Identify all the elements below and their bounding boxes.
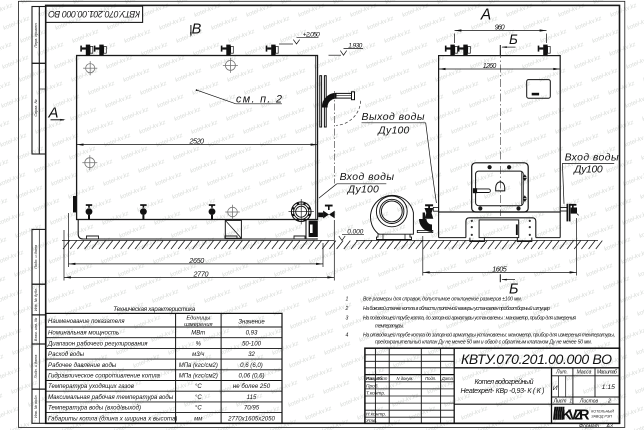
svg-text:kotel-kv.kz: kotel-kv.kz [0, 393, 4, 409]
svg-text:kotel-kv.kz: kotel-kv.kz [636, 341, 644, 357]
svg-text:kotel-kv.kz: kotel-kv.kz [288, 393, 316, 409]
svg-text:Лист: Лист [376, 376, 388, 381]
svg-text:kotel-kv.kz: kotel-kv.kz [624, 133, 644, 149]
svg-text:kotel-kv.kz: kotel-kv.kz [600, 393, 628, 409]
svg-text:kotel-kv.kz: kotel-kv.kz [0, 250, 25, 266]
svg-text:kotel-kv.kz: kotel-kv.kz [151, 328, 179, 344]
svg-text:Диапазон рабочего регулировани: Диапазон рабочего регулирования [47, 340, 148, 347]
svg-text:Рабочее давление воды: Рабочее давление воды [48, 362, 117, 369]
svg-text:kotel-kv.kz: kotel-kv.kz [87, 120, 115, 136]
svg-text:2: 2 [345, 306, 349, 312]
svg-text:Наименование показателя: Наименование показателя [48, 319, 125, 325]
svg-text:kotel-kv.kz: kotel-kv.kz [365, 94, 393, 110]
svg-text:На отводящей трубе котла до за: На отводящей трубе котла до запорной арм… [363, 332, 615, 339]
svg-text:kotel-kv.kz: kotel-kv.kz [534, 263, 562, 279]
svg-text:м3/ч: м3/ч [192, 352, 204, 358]
svg-text:kotel-kv.kz: kotel-kv.kz [381, 146, 409, 162]
svg-text:kotel-kv.kz: kotel-kv.kz [242, 159, 270, 175]
svg-text:kotel-kv.kz: kotel-kv.kz [383, 68, 411, 84]
svg-text:kotel-kv.kz: kotel-kv.kz [16, 185, 44, 201]
svg-text:Подп. и дата: Подп. и дата [34, 355, 38, 379]
svg-text:kotel-kv.kz: kotel-kv.kz [66, 263, 94, 279]
svg-text:Лит.: Лит. [555, 370, 568, 376]
svg-text:kotel-kv.kz: kotel-kv.kz [591, 68, 619, 84]
svg-text:kotel-kv.kz: kotel-kv.kz [0, 42, 13, 58]
svg-text:kotel-kv.kz: kotel-kv.kz [538, 107, 566, 123]
svg-text:kotel-kv.kz: kotel-kv.kz [21, 0, 49, 6]
svg-text:kotel-kv.kz: kotel-kv.kz [638, 263, 644, 279]
svg-text:KVZR: KVZR [562, 408, 591, 424]
svg-text:kotel-kv.kz: kotel-kv.kz [122, 107, 150, 123]
svg-text:МПа (кгс/см2): МПа (кгс/см2) [179, 374, 218, 380]
svg-text:kotel-kv.kz: kotel-kv.kz [430, 263, 458, 279]
svg-text:Максимальная рабочая температу: Максимальная рабочая температура воды [48, 394, 174, 401]
svg-text:kotel-kv.kz: kotel-kv.kz [138, 159, 166, 175]
svg-text:Н.контр.: Н.контр. [366, 412, 386, 418]
svg-text:kotel-kv.kz: kotel-kv.kz [34, 159, 62, 175]
svg-text:kotel-kv.kz: kotel-kv.kz [609, 42, 637, 58]
svg-text:kotel-kv.kz: kotel-kv.kz [124, 29, 152, 45]
svg-text:kotel-kv.kz: kotel-kv.kz [159, 16, 187, 32]
svg-text:kotel-kv.kz: kotel-kv.kz [467, 172, 495, 188]
svg-text:kotel-kv.kz: kotel-kv.kz [0, 198, 9, 214]
svg-text:kotel-kv.kz: kotel-kv.kz [513, 406, 541, 422]
svg-text:мм: мм [194, 416, 202, 422]
svg-text:kotel-kv.kz: kotel-kv.kz [3, 16, 31, 32]
svg-text:kotel-kv.kz: kotel-kv.kz [263, 16, 291, 32]
svg-text:Номинальная мощность: Номинальная мощность [48, 330, 119, 337]
svg-text:kotel-kv.kz: kotel-kv.kz [0, 276, 7, 292]
svg-text:kotel-kv.kz: kotel-kv.kz [12, 341, 40, 357]
svg-text:kotel-kv.kz: kotel-kv.kz [274, 263, 302, 279]
svg-text:Техническая характеристика: Техническая характеристика [113, 306, 195, 313]
svg-text:МПа (кгс/см2): МПа (кгс/см2) [179, 363, 218, 369]
svg-text:kotel-kv.kz: kotel-kv.kz [588, 185, 616, 201]
svg-text:1260: 1260 [483, 63, 497, 70]
svg-text:kotel-kv.kz: kotel-kv.kz [536, 185, 564, 201]
svg-text:kotel-kv.kz: kotel-kv.kz [450, 159, 478, 175]
svg-text:температуры.: температуры. [375, 324, 404, 330]
svg-text:kotel-kv.kz: kotel-kv.kz [417, 94, 445, 110]
svg-text:2770х1605х2050: 2770х1605х2050 [227, 415, 275, 422]
svg-text:kotel-kv.kz: kotel-kv.kz [452, 81, 480, 97]
svg-text:Масштаб: Масштаб [597, 370, 617, 376]
svg-text:kotel-kv.kz: kotel-kv.kz [0, 120, 11, 136]
svg-text:Формат: Формат [579, 423, 599, 429]
svg-text:kotel-kv.kz: kotel-kv.kz [275, 224, 303, 240]
svg-text:kotel-kv.kz: kotel-kv.kz [208, 133, 236, 149]
svg-text:kotel-kv.kz: kotel-kv.kz [309, 250, 337, 266]
svg-text:Значение: Значение [238, 319, 265, 325]
svg-text:kotel-kv.kz: kotel-kv.kz [2, 55, 30, 71]
svg-text:kotel-kv.kz: kotel-kv.kz [295, 120, 323, 136]
svg-text:Подп.: Подп. [425, 376, 436, 381]
svg-text:kotel-kv.kz: kotel-kv.kz [0, 406, 21, 422]
svg-text:kotel-kv.kz: kotel-kv.kz [121, 146, 149, 162]
svg-text:kotel-kv.kz: kotel-kv.kz [289, 354, 317, 370]
svg-text:1:15: 1:15 [602, 384, 615, 391]
svg-text:предохранительный клапан Ду н: предохранительный клапан Ду не менее 50 … [375, 339, 592, 346]
svg-text:kotel-kv.kz: kotel-kv.kz [444, 393, 472, 409]
svg-text:kotel-kv.kz: kotel-kv.kz [155, 172, 183, 188]
svg-text:kotel-kv.kz: kotel-kv.kz [634, 419, 644, 430]
svg-text:kotel-kv.kz: kotel-kv.kz [257, 250, 285, 266]
svg-text:МВт: МВт [191, 331, 205, 337]
svg-text:kotel-kv.kz: kotel-kv.kz [156, 133, 184, 149]
svg-text:kotel-kv.kz: kotel-kv.kz [618, 367, 644, 383]
svg-text:kotel-kv.kz: kotel-kv.kz [123, 68, 151, 84]
svg-text:kotel-kv.kz: kotel-kv.kz [72, 29, 100, 45]
svg-text:kotel-kv.kz: kotel-kv.kz [222, 263, 250, 279]
svg-text:Лист: Лист [553, 399, 567, 405]
svg-text:Справ. №: Справ. № [34, 99, 38, 116]
svg-text:kotel-kv.kz: kotel-kv.kz [241, 198, 269, 214]
svg-text:kotel-kv.kz: kotel-kv.kz [0, 328, 23, 344]
svg-text:Дата: Дата [441, 376, 454, 381]
svg-text:kotel-kv.kz: kotel-kv.kz [409, 406, 437, 422]
svg-text:960: 960 [495, 24, 505, 31]
svg-text:kotel-kv.kz: kotel-kv.kz [608, 81, 636, 97]
svg-text:kotel-kv.kz: kotel-kv.kz [305, 406, 333, 422]
svg-text:Ду100: Ду100 [377, 125, 409, 136]
svg-text:Выход воды: Выход воды [362, 112, 425, 123]
svg-text:kotel-kv.kz: kotel-kv.kz [191, 120, 219, 136]
svg-text:kotel-kv.kz: kotel-kv.kz [384, 29, 412, 45]
svg-text:0,06 (0,6): 0,06 (0,6) [238, 373, 264, 380]
svg-text:измерения: измерения [184, 322, 212, 328]
svg-text:kotel-kv.kz: kotel-kv.kz [517, 250, 545, 266]
svg-text:kotel-kv.kz: kotel-kv.kz [205, 250, 233, 266]
svg-text:kotel-kv.kz: kotel-kv.kz [590, 107, 618, 123]
svg-text:1: 1 [569, 399, 572, 405]
svg-text:kotel-kv.kz: kotel-kv.kz [496, 393, 524, 409]
svg-text:kotel-kv.kz: kotel-kv.kz [324, 341, 352, 357]
svg-text:На боковой стенке котла в обла: На боковой стенке котла в области топочн… [363, 305, 550, 312]
svg-text:kotel-kv.kz: kotel-kv.kz [641, 146, 644, 162]
svg-text:kotel-kv.kz: kotel-kv.kz [626, 55, 644, 71]
svg-text:2520: 2520 [189, 137, 205, 146]
svg-text:0.000: 0.000 [347, 228, 363, 235]
svg-text:kotel-kv.kz: kotel-kv.kz [210, 55, 238, 71]
svg-text:Подп. и дата: Подп. и дата [34, 245, 38, 269]
svg-text:Б: Б [509, 281, 518, 297]
svg-text:КВТУ.070.201.00.000 ВО: КВТУ.070.201.00.000 ВО [461, 351, 612, 367]
svg-text:kotel-kv.kz: kotel-kv.kz [201, 406, 229, 422]
svg-text:kotel-kv.kz: kotel-kv.kz [640, 185, 644, 201]
svg-text:kotel-kv.kz: kotel-kv.kz [617, 406, 644, 422]
svg-text:kotel-kv.kz: kotel-kv.kz [140, 81, 168, 97]
svg-text:kotel-kv.kz: kotel-kv.kz [448, 237, 476, 253]
svg-text:kotel-kv.kz: kotel-kv.kz [192, 81, 220, 97]
svg-text:kotel-kv.kz: kotel-kv.kz [0, 3, 14, 19]
svg-text:kotel-kv.kz: kotel-kv.kz [0, 237, 8, 253]
svg-text:kotel-kv.kz: kotel-kv.kz [207, 172, 235, 188]
svg-text:kotel-kv.kz: kotel-kv.kz [374, 419, 402, 430]
svg-text:На подводящей трубе котла, до: На подводящей трубе котла, до запорной а… [363, 314, 576, 321]
svg-text:kotel-kv.kz: kotel-kv.kz [0, 133, 28, 149]
svg-text:kotel-kv.kz: kotel-kv.kz [468, 133, 496, 149]
svg-text:kotel-kv.kz: kotel-kv.kz [134, 315, 162, 331]
svg-text:Heatexpert- КВр -0,93- К ( К ): Heatexpert- КВр -0,93- К ( К ) [461, 388, 545, 395]
svg-text:kotel-kv.kz: kotel-kv.kz [323, 380, 351, 396]
svg-text:%: % [196, 341, 202, 347]
svg-text:kotel-kv.kz: kotel-kv.kz [154, 211, 182, 227]
svg-text:kotel-kv.kz: kotel-kv.kz [331, 68, 359, 84]
svg-text:kotel-kv.kz: kotel-kv.kz [0, 81, 12, 97]
svg-text:Температура воды (вход/выход): Температура воды (вход/выход) [48, 405, 141, 412]
svg-text:1.930: 1.930 [348, 42, 362, 49]
svg-text:kotel-kv.kz: kotel-kv.kz [51, 172, 79, 188]
svg-text:В: В [192, 22, 202, 38]
svg-text:Взам. инв. №: Взам. инв. № [34, 318, 38, 341]
svg-text:kotel-kv.kz: kotel-kv.kz [345, 198, 373, 214]
svg-text:kotel-kv.kz: kotel-kv.kz [451, 120, 479, 136]
svg-text:kotel-kv.kz: kotel-kv.kz [106, 55, 134, 71]
svg-text:50-100: 50-100 [242, 340, 262, 347]
svg-text:kotel-kv.kz: kotel-kv.kz [621, 250, 644, 266]
svg-text:kotel-kv.kz: kotel-kv.kz [592, 29, 620, 45]
svg-text:kotel-kv.kz: kotel-kv.kz [225, 146, 253, 162]
svg-text:kotel-kv.kz: kotel-kv.kz [416, 133, 444, 149]
svg-text:kotel-kv.kz: kotel-kv.kz [530, 419, 558, 430]
svg-text:kotel-kv.kz: kotel-kv.kz [522, 55, 550, 71]
svg-text:kotel-kv.kz: kotel-kv.kz [262, 55, 290, 71]
svg-text:kotel-kv.kz: kotel-kv.kz [173, 146, 201, 162]
svg-text:kotel-kv.kz: kotel-kv.kz [0, 172, 27, 188]
svg-text:kotel-kv.kz: kotel-kv.kz [224, 185, 252, 201]
svg-text:kotel-kv.kz: kotel-kv.kz [401, 42, 429, 58]
svg-text:Ду100: Ду100 [347, 185, 379, 196]
svg-text:kotel-kv.kz: kotel-kv.kz [35, 120, 63, 136]
svg-text:kotel-kv.kz: kotel-kv.kz [271, 380, 299, 396]
svg-text:kotel-kv.kz: kotel-kv.kz [0, 315, 6, 331]
svg-text:kotel-kv.kz: kotel-kv.kz [395, 276, 423, 292]
svg-text:Габариты котла (длина х ширина: Габариты котла (длина х ширина х высота) [48, 415, 177, 422]
svg-text:kotel-kv.kz: kotel-kv.kz [153, 250, 181, 266]
svg-text:Все размеры для справок, допус: Все размеры для справок, допустимое откл… [363, 297, 522, 303]
svg-text:Б: Б [509, 32, 518, 47]
svg-text:Вход воды: Вход воды [340, 172, 395, 183]
svg-text:kotel-kv.kz: kotel-kv.kz [0, 159, 10, 175]
svg-text:kotel-kv.kz: kotel-kv.kz [239, 276, 267, 292]
svg-text:kotel-kv.kz: kotel-kv.kz [101, 250, 129, 266]
svg-text:kotel-kv.kz: kotel-kv.kz [37, 42, 65, 58]
svg-text:kotel-kv.kz: kotel-kv.kz [602, 315, 630, 331]
svg-text:1605: 1605 [492, 264, 508, 273]
svg-text:kotel-kv.kz: kotel-kv.kz [586, 263, 614, 279]
svg-text:kotel-kv.kz: kotel-kv.kz [639, 224, 644, 240]
svg-text:kotel-kv.kz: kotel-kv.kz [48, 289, 76, 305]
svg-text:kotel-kv.kz: kotel-kv.kz [260, 133, 288, 149]
svg-text:Т.контр.: Т.контр. [366, 390, 385, 396]
svg-text:kotel-kv.kz: kotel-kv.kz [133, 354, 161, 370]
svg-text:kotel-kv.kz: kotel-kv.kz [172, 185, 200, 201]
svg-text:kotel-kv.kz: kotel-kv.kz [10, 419, 38, 430]
svg-text:kotel-kv.kz: kotel-kv.kz [625, 94, 644, 110]
svg-text:kotel-kv.kz: kotel-kv.kz [486, 107, 514, 123]
svg-text:Котел водогрейный: Котел водогрейный [475, 378, 534, 386]
svg-text:kotel-kv.kz: kotel-kv.kz [340, 393, 368, 409]
svg-text:kotel-kv.kz: kotel-kv.kz [361, 250, 389, 266]
svg-text:kotel-kv.kz: kotel-kv.kz [540, 29, 568, 45]
svg-text:°С: °С [195, 384, 202, 390]
svg-text:kotel-kv.kz: kotel-kv.kz [465, 250, 493, 266]
svg-text:kotel-kv.kz: kotel-kv.kz [523, 16, 551, 32]
svg-text:kotel-kv.kz: kotel-kv.kz [171, 224, 199, 240]
svg-text:kotel-kv.kz: kotel-kv.kz [518, 211, 546, 227]
svg-text:kotel-kv.kz: kotel-kv.kz [539, 68, 567, 84]
svg-text:kotel-kv.kz: kotel-kv.kz [68, 185, 96, 201]
svg-text:kotel-kv.kz: kotel-kv.kz [256, 289, 284, 305]
svg-text:kotel-kv.kz: kotel-kv.kz [11, 380, 39, 396]
svg-text:Проб.: Проб. [366, 383, 379, 389]
svg-text:kotel-kv.kz: kotel-kv.kz [52, 133, 80, 149]
svg-text:2770: 2770 [193, 269, 209, 278]
svg-text:kotel-kv.kz: kotel-kv.kz [104, 133, 132, 149]
svg-text:kotel-kv.kz: kotel-kv.kz [291, 276, 319, 292]
svg-text:kotel-kv.kz: kotel-kv.kz [603, 276, 631, 292]
svg-text:kotel-kv.kz: kotel-kv.kz [315, 16, 343, 32]
svg-text:kotel-kv.kz: kotel-kv.kz [568, 289, 596, 305]
svg-text:kotel-kv.kz: kotel-kv.kz [290, 315, 318, 331]
svg-text:kotel-kv.kz: kotel-kv.kz [503, 120, 531, 136]
svg-text:kotel-kv.kz: kotel-kv.kz [228, 29, 256, 45]
svg-text:kotel-kv.kz: kotel-kv.kz [500, 237, 528, 253]
svg-text:kotel-kv.kz: kotel-kv.kz [635, 380, 644, 396]
svg-text:kotel-kv.kz: kotel-kv.kz [362, 211, 390, 227]
svg-text:Температура уходящих газов: Температура уходящих газов [48, 383, 134, 390]
svg-text:kotel-kv.kz: kotel-kv.kz [243, 120, 271, 136]
svg-text:kotel-kv.kz: kotel-kv.kz [433, 146, 461, 162]
svg-text:kotel-kv.kz: kotel-kv.kz [478, 419, 506, 430]
svg-text:kotel-kv.kz: kotel-kv.kz [65, 302, 93, 318]
svg-text:kotel-kv.kz: kotel-kv.kz [54, 55, 82, 71]
svg-text:32: 32 [248, 351, 255, 358]
svg-text:Расход воды: Расход воды [48, 351, 85, 358]
svg-text:kotel-kv.kz: kotel-kv.kz [278, 107, 306, 123]
svg-text:kotel-kv.kz: kotel-kv.kz [69, 146, 97, 162]
svg-text:kotel-kv.kz: kotel-kv.kz [607, 120, 635, 136]
svg-text:115: 115 [247, 394, 257, 401]
svg-text:А3: А3 [606, 423, 613, 429]
svg-text:kotel-kv.kz: kotel-kv.kz [88, 81, 116, 97]
svg-text:kotel-kv.kz: kotel-kv.kz [398, 159, 426, 175]
svg-text:Инв. № подл.: Инв. № подл. [34, 394, 38, 418]
svg-text:0,6 (6,0): 0,6 (6,0) [240, 362, 263, 369]
svg-text:Утв.: Утв. [366, 418, 377, 424]
svg-text:kotel-kv.kz: kotel-kv.kz [413, 250, 441, 266]
svg-text:kotel-kv.kz: kotel-kv.kz [461, 406, 489, 422]
svg-text:Инв. № дубл.: Инв. № дубл. [34, 288, 38, 311]
svg-text:kotel-kv.kz: kotel-kv.kz [325, 302, 353, 318]
svg-text:70/95: 70/95 [244, 405, 260, 412]
svg-text:kotel-kv.kz: kotel-kv.kz [119, 224, 147, 240]
svg-text:kotel-kv.kz: kotel-kv.kz [605, 198, 633, 214]
svg-text:kotel-kv.kz: kotel-kv.kz [574, 55, 602, 71]
svg-text:kotel-kv.kz: kotel-kv.kz [322, 419, 350, 430]
svg-text:kotel-kv.kz: kotel-kv.kz [604, 237, 632, 253]
svg-text:kotel-kv.kz: kotel-kv.kz [0, 289, 24, 305]
svg-text:°С: °С [195, 406, 202, 412]
svg-text:kotel-kv.kz: kotel-kv.kz [209, 94, 237, 110]
svg-text:0,93: 0,93 [246, 330, 258, 337]
svg-text:2650: 2650 [188, 256, 204, 265]
svg-text:kotel-kv.kz: kotel-kv.kz [120, 185, 148, 201]
svg-text:kotel-kv.kz: kotel-kv.kz [623, 172, 644, 188]
svg-text:kotel-kv.kz: kotel-kv.kz [276, 185, 304, 201]
svg-text:Ду100: Ду100 [573, 165, 603, 176]
svg-text:kotel-kv.kz: kotel-kv.kz [392, 393, 420, 409]
svg-text:kotel-kv.kz: kotel-kv.kz [1, 94, 29, 110]
svg-text:kotel-kv.kz: kotel-kv.kz [551, 276, 579, 292]
svg-text:kotel-kv.kz: kotel-kv.kz [485, 146, 513, 162]
svg-text:kotel-kv.kz: kotel-kv.kz [326, 263, 354, 279]
svg-text:kotel-kv.kz: kotel-kv.kz [118, 263, 146, 279]
svg-text:kotel-kv.kz: kotel-kv.kz [469, 94, 497, 110]
svg-text:kotel-kv.kz: kotel-kv.kz [504, 81, 532, 97]
svg-text:kotel-kv.kz: kotel-kv.kz [344, 237, 372, 253]
svg-text:+2,050: +2,050 [303, 32, 320, 39]
svg-text:Изм: Изм [366, 376, 374, 381]
svg-text:А: А [47, 105, 58, 122]
svg-text:kotel-kv.kz: kotel-kv.kz [221, 302, 249, 318]
svg-text:kotel-kv.kz: kotel-kv.kz [70, 107, 98, 123]
svg-text:kotel-kv.kz: kotel-kv.kz [277, 146, 305, 162]
svg-text:kotel-kv.kz: kotel-kv.kz [343, 276, 371, 292]
svg-text:kotel-kv.kz: kotel-kv.kz [139, 120, 167, 136]
svg-text:kotel-kv.kz: kotel-kv.kz [174, 107, 202, 123]
svg-text:kotel-kv.kz: kotel-kv.kz [619, 328, 644, 344]
svg-text:kotel-kv.kz: kotel-kv.kz [502, 159, 530, 175]
svg-text:kotel-kv.kz: kotel-kv.kz [50, 211, 78, 227]
svg-text:kotel-kv.kz: kotel-kv.kz [419, 16, 447, 32]
svg-text:kotel-kv.kz: kotel-kv.kz [637, 302, 644, 318]
svg-text:kotel-kv.kz: kotel-kv.kz [83, 276, 111, 292]
svg-text:kotel-kv.kz: kotel-kv.kz [135, 276, 163, 292]
svg-text:Гидравлическое сопротивление к: Гидравлическое сопротивление котла [48, 373, 161, 380]
svg-text:Масса: Масса [577, 370, 592, 376]
svg-text:kotel-kv.kz: kotel-kv.kz [158, 55, 186, 71]
svg-text:kotel-kv.kz: kotel-kv.kz [367, 16, 395, 32]
svg-text:kotel-kv.kz: kotel-kv.kz [259, 172, 287, 188]
svg-text:kotel-kv.kz: kotel-kv.kz [575, 16, 603, 32]
svg-text:КВТУ.070.201.00.000 ВО: КВТУ.070.201.00.000 ВО [48, 9, 140, 19]
svg-text:kotel-kv.kz: kotel-kv.kz [203, 328, 231, 344]
svg-text:kotel-kv.kz: kotel-kv.kz [308, 289, 336, 305]
svg-text:kotel-kv.kz: kotel-kv.kz [0, 211, 26, 227]
svg-text:1: 1 [346, 297, 349, 303]
svg-text:kotel-kv.kz: kotel-kv.kz [102, 211, 130, 227]
svg-text:kotel-kv.kz: kotel-kv.kz [627, 16, 644, 32]
svg-text:ЗАВОД РЭП: ЗАВОД РЭП [591, 414, 612, 418]
svg-text:kotel-kv.kz: kotel-kv.kz [555, 120, 583, 136]
svg-text:kotel-kv.kz: kotel-kv.kz [330, 107, 358, 123]
svg-text:kotel-kv.kz: kotel-kv.kz [157, 94, 185, 110]
svg-text:4: 4 [346, 333, 349, 339]
svg-text:КОТЕЛЬНЫЙ: КОТЕЛЬНЫЙ [591, 409, 614, 413]
svg-text:не более 250: не более 250 [233, 383, 271, 390]
svg-text:kotel-kv.kz: kotel-kv.kz [226, 107, 254, 123]
svg-text:kotel-kv.kz: kotel-kv.kz [400, 81, 428, 97]
svg-text:kotel-kv.kz: kotel-kv.kz [573, 94, 601, 110]
svg-text:kotel-kv.kz: kotel-kv.kz [418, 55, 446, 71]
svg-text:kotel-kv.kz: kotel-kv.kz [329, 146, 357, 162]
svg-text:kotel-kv.kz: kotel-kv.kz [434, 107, 462, 123]
svg-text:kotel-kv.kz: kotel-kv.kz [33, 198, 61, 214]
svg-text:°С: °С [195, 395, 202, 401]
svg-text:kotel-kv.kz: kotel-kv.kz [366, 55, 394, 71]
svg-text:3: 3 [346, 315, 349, 321]
